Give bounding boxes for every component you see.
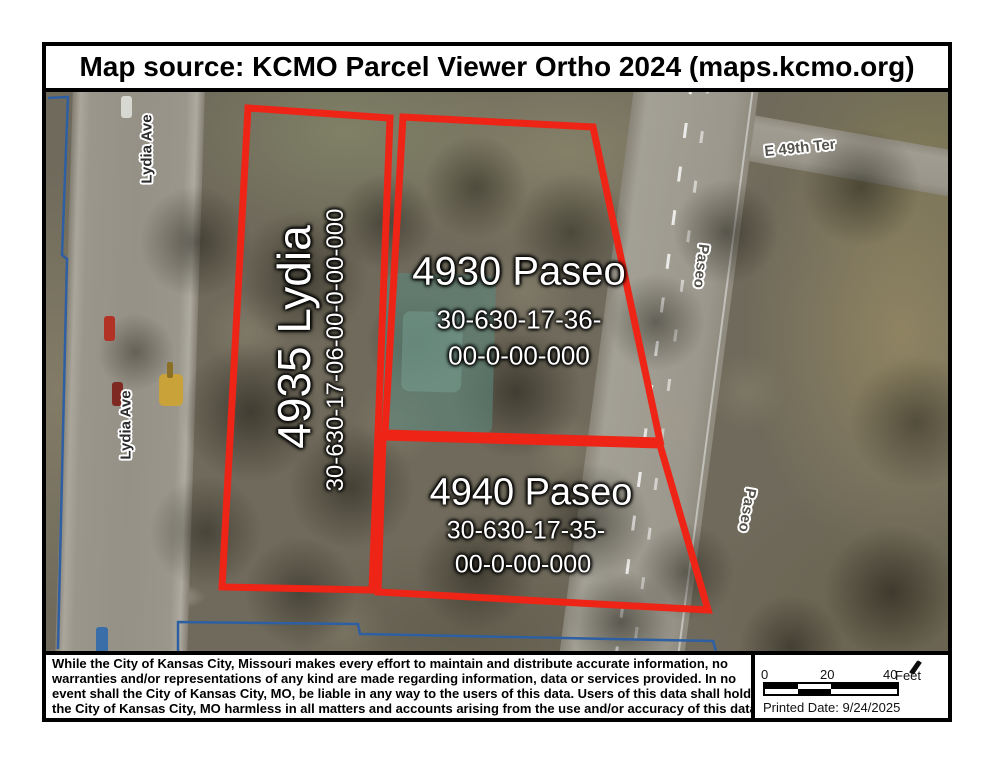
title-bar: Map source: KCMO Parcel Viewer Ortho 202… bbox=[46, 46, 948, 92]
parcel-id-4930-paseo-line1: 30-630-17-36- bbox=[437, 305, 602, 336]
adjacent-parcel-boundary-blue-bottom bbox=[178, 622, 716, 651]
scale-bar-segments bbox=[763, 682, 899, 696]
parcel-id-4940-paseo-line2: 00-0-00-000 bbox=[455, 551, 591, 580]
scale-unit-label: Feet bbox=[895, 668, 921, 683]
scale-segment bbox=[831, 689, 897, 694]
scale-tick-20: 20 bbox=[820, 667, 834, 682]
printed-date: Printed Date: 9/24/2025 bbox=[763, 700, 900, 715]
parcel-address-4935-lydia: 4935 Lydia bbox=[267, 225, 321, 448]
scale-segment bbox=[798, 689, 831, 694]
adjacent-parcel-boundary-blue-left bbox=[48, 97, 68, 649]
scale-box: 0 20 40 Feet Printed Date: 9/24/2025 bbox=[755, 655, 948, 718]
parcel-id-4930-paseo-line2: 00-0-00-000 bbox=[448, 341, 590, 372]
parcel-address-4940-paseo: 4940 Paseo bbox=[430, 472, 633, 515]
disclaimer-line: event shall the City of Kansas City, MO,… bbox=[52, 687, 745, 702]
scale-tick-0: 0 bbox=[761, 667, 768, 682]
disclaimer-line: warranties and/or representations of any… bbox=[52, 672, 745, 687]
map-source-title: Map source: KCMO Parcel Viewer Ortho 202… bbox=[46, 46, 948, 88]
street-label-lydia-ave-south: Lydia Ave bbox=[118, 390, 135, 459]
bottom-bar: While the City of Kansas City, Missouri … bbox=[46, 651, 948, 718]
parcel-address-4930-paseo: 4930 Paseo bbox=[412, 250, 626, 295]
map-print-frame: Map source: KCMO Parcel Viewer Ortho 202… bbox=[42, 42, 952, 722]
disclaimer-line: the City of Kansas City, MO harmless in … bbox=[52, 702, 745, 717]
disclaimer-box: While the City of Kansas City, Missouri … bbox=[46, 655, 755, 718]
aerial-map: Lydia Ave Lydia Ave E 49th Ter Paseo Pas… bbox=[46, 92, 948, 651]
disclaimer-line: While the City of Kansas City, Missouri … bbox=[52, 657, 745, 672]
parcel-id-4935-lydia: 30-630-17-06-00-0-00-000 bbox=[322, 209, 350, 492]
street-label-lydia-ave-north: Lydia Ave bbox=[139, 114, 156, 183]
parcel-id-4940-paseo-line1: 30-630-17-35- bbox=[447, 517, 605, 546]
scale-segment bbox=[765, 689, 798, 694]
